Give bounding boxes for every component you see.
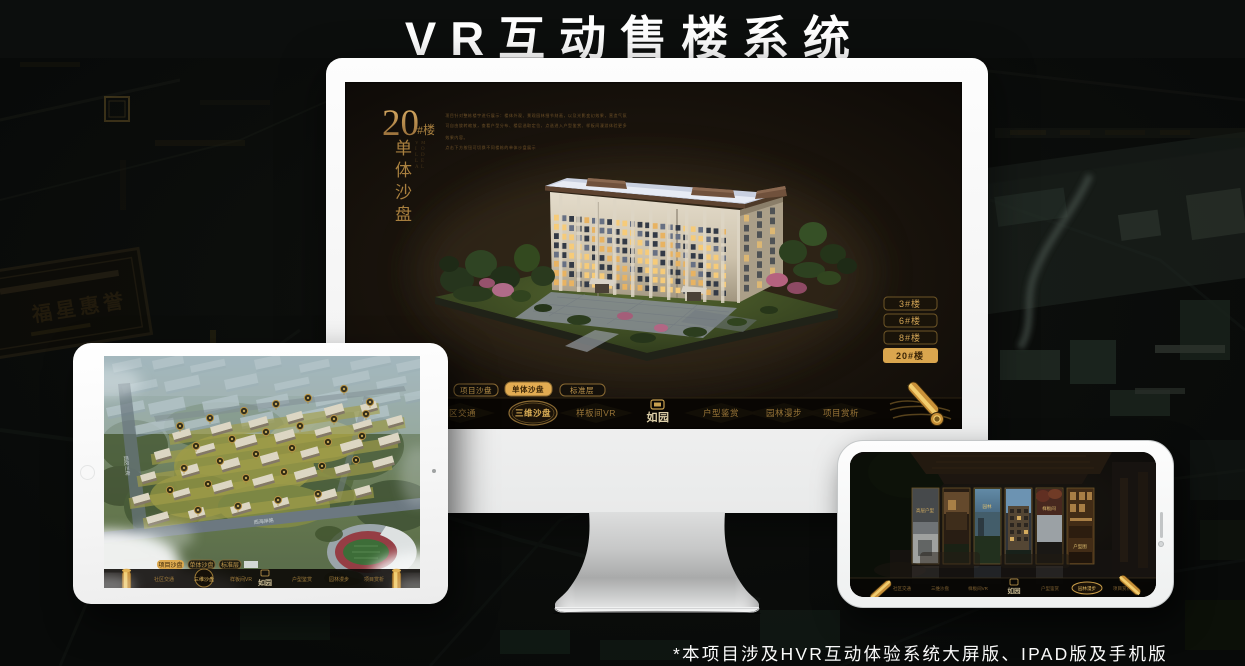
svg-text:20#楼: 20#楼 [896, 350, 924, 361]
svg-text:社区交通: 社区交通 [154, 576, 174, 583]
svg-text:高层户型: 高层户型 [916, 507, 934, 514]
svg-text:效果内容。: 效果内容。 [445, 135, 468, 140]
svg-text:样板间: 样板间 [1042, 505, 1056, 512]
svg-text:如园: 如园 [258, 578, 272, 587]
svg-text:D: D [421, 153, 425, 158]
svg-text:体: 体 [395, 161, 412, 180]
svg-text:园林漫步: 园林漫步 [1078, 585, 1096, 592]
svg-text:盘: 盘 [395, 205, 412, 224]
svg-text:L: L [421, 165, 424, 170]
svg-text:单: 单 [395, 139, 412, 158]
svg-text:V: V [415, 141, 419, 146]
svg-text:点击下方按钮可切换不同楼栋的单体沙盘展示: 点击下方按钮可切换不同楼栋的单体沙盘展示 [445, 145, 536, 150]
svg-text:项目赏析: 项目赏析 [364, 576, 384, 583]
svg-text:户型鉴赏: 户型鉴赏 [292, 576, 312, 583]
svg-text:项目赏析: 项目赏析 [823, 408, 859, 418]
svg-text:园林漫步: 园林漫步 [329, 576, 349, 583]
svg-text:M: M [421, 141, 426, 146]
svg-text:6#楼: 6#楼 [899, 315, 921, 326]
svg-text:L: L [415, 159, 418, 164]
svg-text:3#楼: 3#楼 [899, 298, 921, 309]
svg-text:项目沙盘: 项目沙盘 [158, 561, 182, 569]
svg-text:三维沙盘: 三维沙盘 [194, 576, 214, 583]
svg-text:沙: 沙 [395, 183, 412, 202]
svg-text:#楼: #楼 [417, 122, 435, 137]
svg-text:三维沙盘: 三维沙盘 [931, 585, 949, 592]
svg-text:样板间VR: 样板间VR [968, 585, 989, 592]
svg-text:单体沙盘: 单体沙盘 [189, 561, 213, 569]
svg-text:样板间VR: 样板间VR [576, 408, 616, 418]
svg-text:园林: 园林 [983, 503, 992, 510]
svg-text:户型图: 户型图 [1073, 543, 1087, 550]
svg-text:项目沙盘: 项目沙盘 [460, 385, 492, 395]
svg-text:户型鉴赏: 户型鉴赏 [703, 408, 739, 418]
svg-text:A: A [415, 165, 419, 170]
svg-text:园林漫步: 园林漫步 [766, 408, 802, 418]
svg-text:20: 20 [382, 103, 419, 144]
svg-text:项目针对整栋楼宇进行展示：楼体外观、景观园林细节刻画，以及光: 项目针对整栋楼宇进行展示：楼体外观、景观园林细节刻画，以及光影变幻效果，营造气氛 [445, 113, 627, 118]
svg-text:O: O [421, 147, 425, 152]
svg-text:社区交通: 社区交通 [893, 585, 911, 592]
svg-text:如园: 如园 [1008, 586, 1022, 595]
svg-text:户型鉴赏: 户型鉴赏 [1041, 585, 1059, 592]
svg-text:标准层: 标准层 [570, 385, 594, 395]
svg-text:单体沙盘: 单体沙盘 [512, 384, 544, 394]
svg-text:如园: 如园 [647, 410, 670, 424]
svg-text:标准层: 标准层 [221, 561, 239, 569]
svg-text:L: L [415, 153, 418, 158]
svg-text:三维沙盘: 三维沙盘 [515, 408, 551, 418]
svg-text:8#楼: 8#楼 [899, 332, 921, 343]
svg-text:E: E [421, 159, 424, 164]
svg-text:样板间VR: 样板间VR [230, 576, 252, 583]
svg-text:可自由旋转缩放，查看户型分布、楼层选取定位，点选进入户型鉴赏: 可自由旋转缩放，查看户型分布、楼层选取定位，点选进入户型鉴赏、样板间漫游体验更多 [445, 123, 627, 128]
